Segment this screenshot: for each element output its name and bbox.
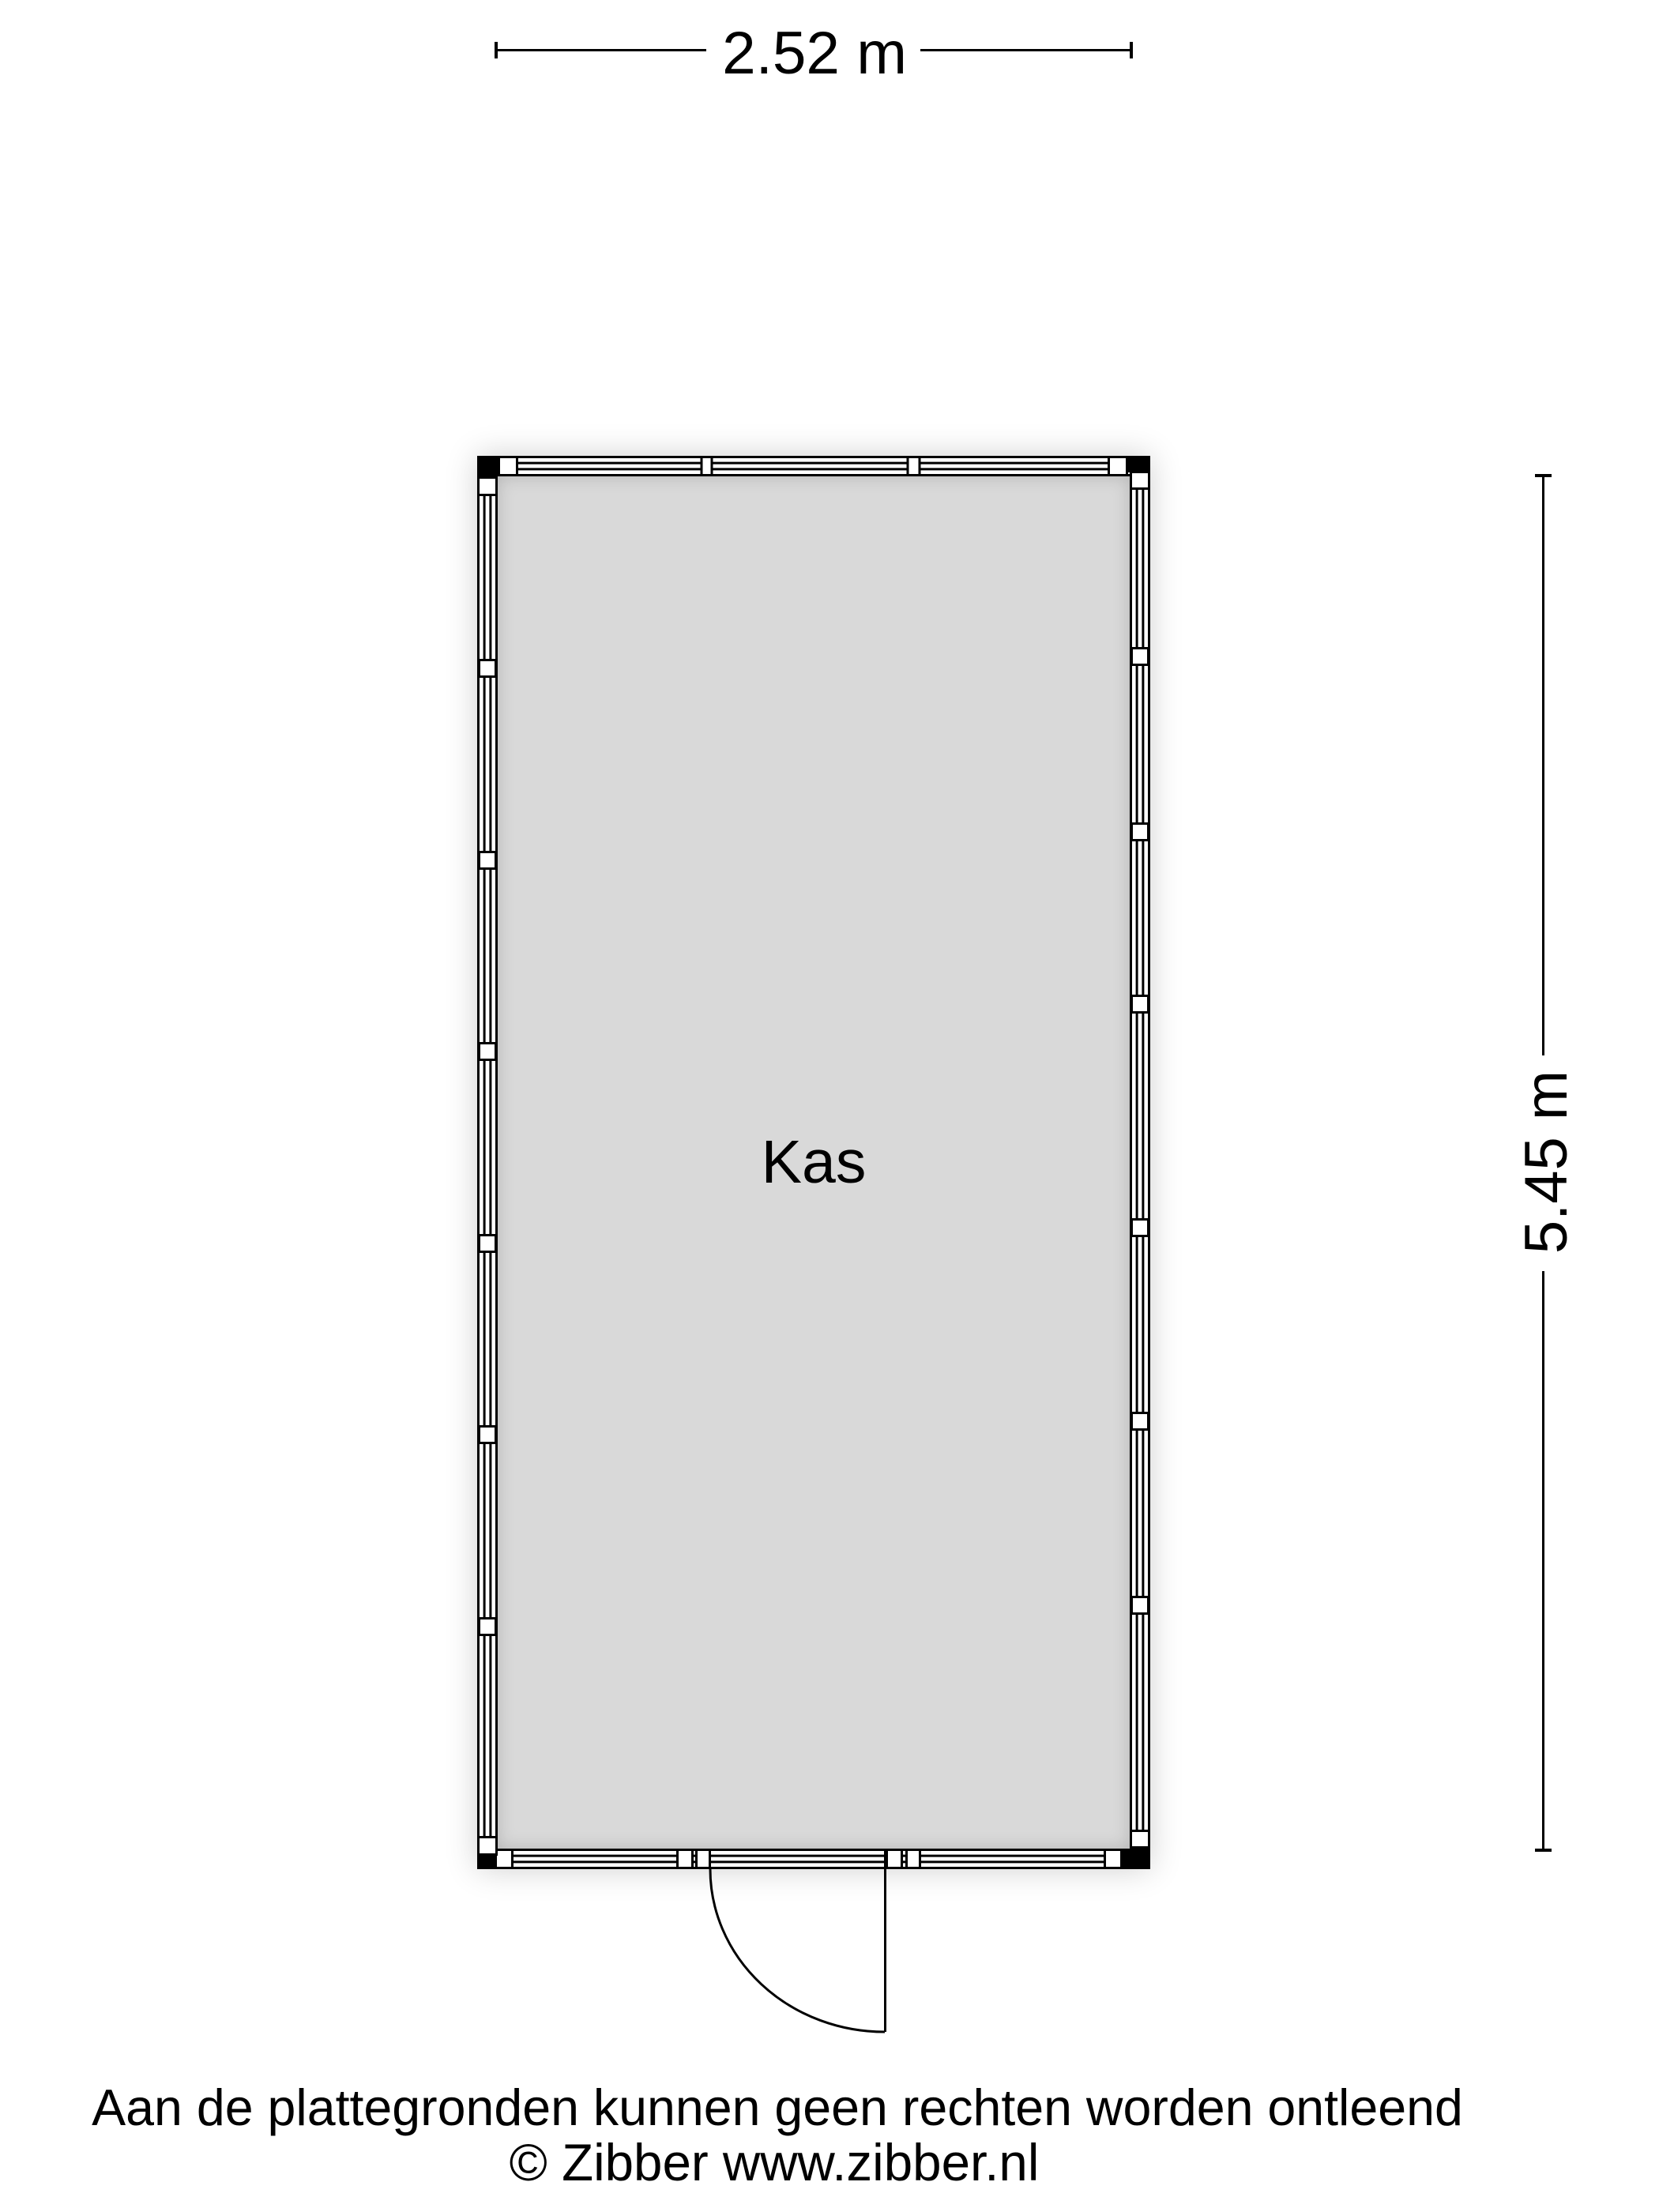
- svg-text:Kas: Kas: [762, 1128, 867, 1196]
- svg-text:Aan de plattegronden kunnen ge: Aan de plattegronden kunnen geen rechten…: [92, 2079, 1463, 2136]
- svg-text:2.52 m: 2.52 m: [722, 20, 907, 87]
- svg-text:5.45 m: 5.45 m: [1513, 1070, 1580, 1254]
- svg-text:© Zibber www.zibber.nl: © Zibber www.zibber.nl: [510, 2134, 1040, 2191]
